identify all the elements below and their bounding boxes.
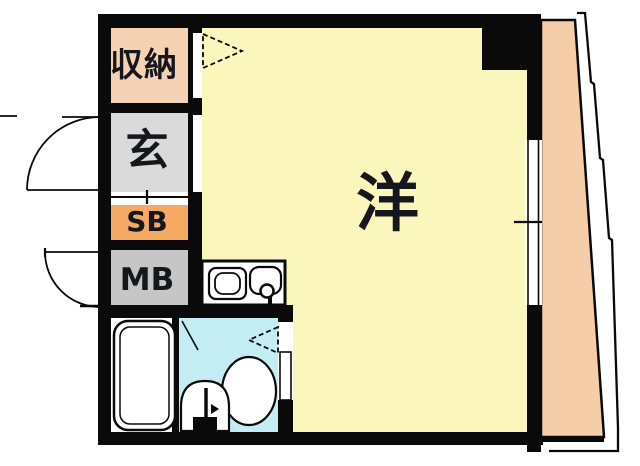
entrance-threshold-strip: [111, 192, 188, 205]
wall-right-lower: [527, 305, 541, 452]
wall-top: [98, 14, 540, 28]
label-balcony: バルコニー: [544, 174, 572, 414]
pillar-top-right: [482, 14, 540, 70]
label-meter-box: MB: [107, 265, 187, 296]
entrance-door-swing: [0, 116, 100, 190]
floor-plan: 収納 玄 SB MB 洋 バルコニー: [0, 0, 640, 466]
room-bathroom-floor: [111, 318, 172, 432]
room-toilet-floor: [179, 318, 278, 432]
closet-door-opening: [193, 33, 202, 98]
entrance-door-opening: [193, 115, 202, 192]
wall-bottom: [98, 432, 543, 445]
wall-below-shoe-box: [111, 240, 188, 250]
wall-below-storage: [111, 103, 188, 113]
wall-bath-toilet-divider: [172, 318, 179, 432]
label-storage: 収納: [96, 48, 192, 81]
wall-bathroom-top: [98, 305, 293, 318]
meterbox-door-swing: [45, 248, 100, 307]
label-entrance: 玄: [107, 130, 187, 173]
label-western-room: 洋: [330, 172, 445, 235]
label-shoe-box: SB: [107, 208, 187, 236]
wall-bathroom-right: [278, 318, 293, 432]
